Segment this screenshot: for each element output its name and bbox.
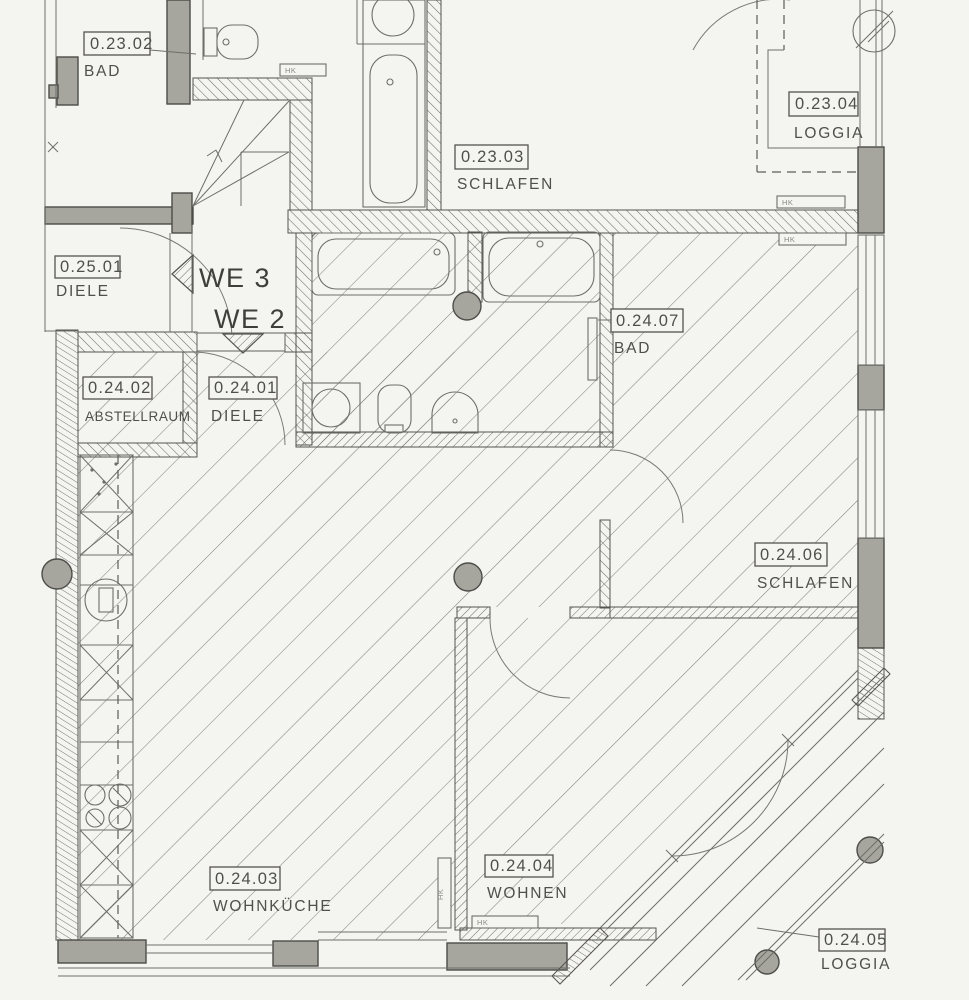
svg-text:DIELE: DIELE: [56, 283, 110, 300]
label-diele-025-01: 0.25.01 DIELE: [55, 256, 123, 300]
svg-text:0.24.05: 0.24.05: [824, 931, 887, 949]
svg-text:0.24.02: 0.24.02: [88, 379, 151, 397]
svg-text:BAD: BAD: [84, 63, 121, 80]
unit-label-we2: WE 2: [214, 304, 286, 334]
svg-text:0.23.03: 0.23.03: [461, 148, 524, 166]
svg-text:LOGGIA: LOGGIA: [821, 956, 891, 973]
right-wall-windows: [858, 0, 884, 538]
svg-text:0.24.03: 0.24.03: [215, 870, 278, 888]
svg-text:WOHNEN: WOHNEN: [487, 885, 568, 902]
floorplan-drawing: HK HK HK HK HK 0.23.02 BAD 0.23.03 SCHLA…: [0, 0, 969, 1000]
unit-label-we3: WE 3: [199, 263, 271, 293]
svg-text:0.25.01: 0.25.01: [60, 258, 123, 276]
svg-text:DIELE: DIELE: [211, 408, 265, 425]
hk-label: HK: [436, 889, 445, 900]
hk-label: HK: [285, 66, 296, 75]
upper-loggia: [693, 0, 895, 172]
floorplan-canvas: HK HK HK HK HK 0.23.02 BAD 0.23.03 SCHLA…: [0, 0, 969, 1000]
svg-text:ABSTELLRAUM: ABSTELLRAUM: [85, 409, 191, 424]
svg-text:0.23.04: 0.23.04: [795, 95, 858, 113]
hk-label: HK: [784, 235, 795, 244]
svg-text:WOHNKÜCHE: WOHNKÜCHE: [213, 897, 333, 915]
label-loggia-023-04: 0.23.04 LOGGIA: [789, 92, 864, 142]
svg-text:0.24.06: 0.24.06: [760, 546, 823, 564]
svg-text:0.24.04: 0.24.04: [490, 857, 553, 875]
svg-text:LOGGIA: LOGGIA: [794, 125, 864, 142]
loggia-column: [857, 837, 883, 863]
column: [454, 563, 482, 591]
column: [453, 292, 481, 320]
label-schlafen-023-03: 0.23.03 SCHLAFEN: [455, 145, 554, 193]
svg-text:0.24.01: 0.24.01: [214, 379, 277, 397]
svg-text:SCHLAFEN: SCHLAFEN: [757, 575, 854, 592]
we3-entry-arrow: [172, 255, 193, 293]
svg-text:SCHLAFEN: SCHLAFEN: [457, 176, 554, 193]
svg-text:BAD: BAD: [614, 340, 651, 357]
svg-text:0.23.02: 0.23.02: [90, 35, 153, 53]
hk-label: HK: [477, 918, 488, 927]
svg-text:0.24.07: 0.24.07: [616, 312, 679, 330]
upper-bathroom-fixtures: [357, 0, 425, 207]
column: [42, 559, 72, 589]
hk-label: HK: [782, 198, 793, 207]
toilet-fixture: [204, 25, 258, 59]
loggia-column: [755, 950, 779, 974]
